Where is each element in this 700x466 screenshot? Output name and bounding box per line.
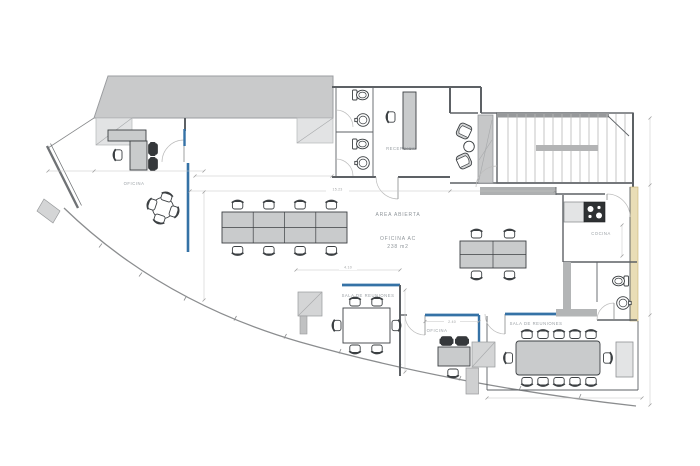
round-table-group [143,188,183,228]
office-chair-icon [149,157,158,171]
dim-office-width: 2.40 [448,320,456,324]
chair-icon [537,378,549,387]
chair-icon [333,320,342,332]
door-arc [485,314,505,334]
chair-icon [371,345,383,354]
chair-icon [537,330,549,339]
desk-return [130,141,147,170]
chair-icon [585,330,597,339]
chair-icon [387,111,396,123]
door-arc [162,140,184,162]
office-chair-icon [455,337,469,346]
desk [438,347,470,366]
sink-icon [355,157,370,170]
chair-icon [326,247,338,256]
curved-facade [64,208,636,406]
armchair-icon [455,122,473,140]
chair-icon [447,369,459,378]
open-area: AREA ABIERTA OFICINA AC 238 m2 [222,201,526,280]
room-oficina-left: OFICINA [108,118,188,252]
room-label-oficina-bottom: OFICINA [427,328,448,333]
room-sala-reuniones-center: SALA DE REUNIONES [298,285,401,376]
door-arc [405,315,425,335]
chair-icon [504,271,516,280]
room-label-recepcion: RECEPCION [386,146,416,151]
chair-icon [521,330,533,339]
room-label-cocina: COCINA [591,231,611,236]
chair-icon [553,378,565,387]
side-table [464,141,475,152]
wall-segment [556,309,597,317]
door-arc [336,110,353,127]
room-sala-reuniones-right: SALA DE REUNIONES [485,262,633,386]
toilet-icon [613,276,629,286]
room-label-area-abierta: AREA ABIERTA [376,212,421,218]
dim-meeting-room-width: 4.10 [344,266,352,270]
room-label-sala-center: SALA DE REUNIONES [342,293,395,298]
wall-pier [37,199,60,223]
chair-icon [504,230,516,239]
office-chair-icon [440,337,454,346]
toilet-icon [353,90,369,100]
chair-icon [504,352,513,364]
stair-handrail [536,145,598,151]
chair-icon [392,320,401,332]
chair-icon [232,201,244,210]
chair-icon [114,149,123,161]
kitchen-counter [564,202,584,222]
staircase [497,113,633,183]
meeting-table [343,308,390,343]
room-label-oficina-ac: OFICINA AC [380,236,416,242]
chair-icon [471,271,483,280]
chair-icon [349,298,361,307]
room-oficina-bottom: OFICINA [400,315,495,394]
sink-icon [617,297,632,310]
toilet-icon [353,139,369,149]
chair-icon [471,230,483,239]
sink-icon [355,114,370,127]
chair-icon [521,378,533,387]
desk [108,130,146,141]
door-arc [607,194,630,217]
dim-open-area-width: 15.23 [333,188,343,192]
chair-icon [349,345,361,354]
reception-desk [403,92,416,149]
credenza [616,342,633,377]
room-reception: RECEPCION [332,87,450,199]
floorplan: OFICINA RECEPCION [0,0,700,466]
accent-wall [630,187,638,321]
office-chair-icon [149,142,158,156]
stair-door [608,116,629,136]
door-arc [376,177,398,199]
chair-icon [569,330,581,339]
chair-icon [604,352,613,364]
chair-icon [326,201,338,210]
chair-icon [585,378,597,387]
wall-segment [563,262,571,315]
area-value: 238 m2 [387,244,408,250]
top-wall-band [94,76,333,118]
room-label-sala-right: SALA DE REUNIONES [510,321,563,326]
stove-icon [584,202,605,222]
door-arc [597,303,614,320]
floorplan-drawing: OFICINA RECEPCION [0,0,700,466]
chair-icon [569,378,581,387]
chair-icon [263,201,275,210]
chair-icon [232,247,244,256]
chair-icon [294,247,306,256]
door-arc [336,159,353,176]
diagonal-wall [47,146,78,208]
chair-icon [263,247,275,256]
armchair-icon [455,152,473,170]
chair-icon [294,201,306,210]
chair-icon [553,330,565,339]
chair-icon [371,298,383,307]
wall-segment [300,316,307,334]
wall-segment [466,368,479,394]
conference-table [516,341,600,375]
room-label-oficina-left: OFICINA [124,181,145,186]
